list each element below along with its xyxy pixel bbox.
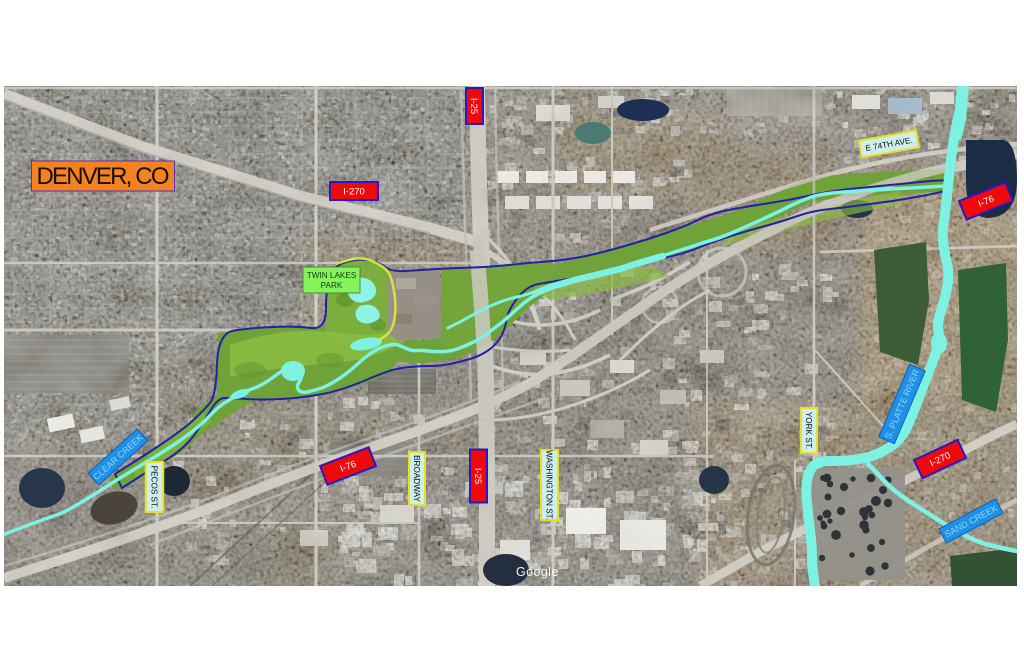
svg-text:I-25: I-25 — [472, 468, 483, 484]
svg-text:I-25: I-25 — [468, 98, 479, 114]
svg-text:Google: Google — [516, 565, 559, 579]
svg-text:WASHINGTON ST.: WASHINGTON ST. — [545, 450, 554, 520]
svg-text:DENVER, CO: DENVER, CO — [37, 163, 170, 190]
svg-text:PECOS ST.: PECOS ST. — [150, 466, 159, 509]
svg-text:PARK: PARK — [321, 281, 343, 290]
svg-text:BROADWAY: BROADWAY — [412, 455, 421, 502]
svg-text:TWIN LAKES: TWIN LAKES — [307, 271, 357, 280]
svg-text:YORK ST.: YORK ST. — [804, 412, 813, 449]
svg-text:I-270: I-270 — [343, 186, 365, 197]
